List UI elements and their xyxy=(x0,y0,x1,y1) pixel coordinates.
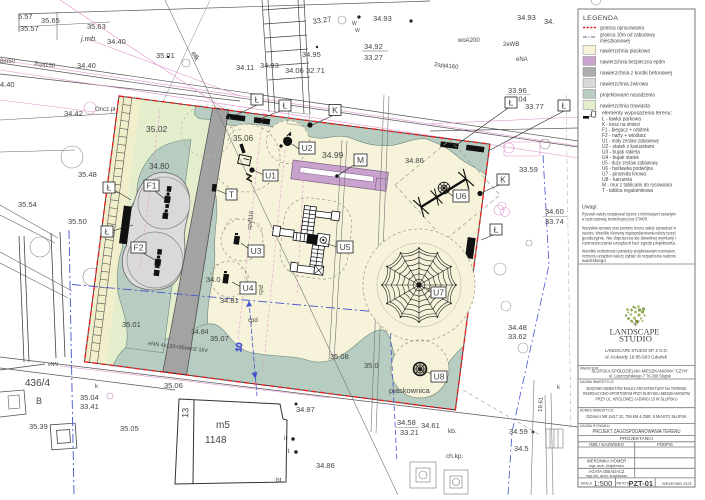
svg-text:PRZY UL. KRÓLOWEJ JADWIGI 10 W: PRZY UL. KRÓLOWEJ JADWIGI 10 W SŁUPSKU xyxy=(596,396,678,402)
svg-text:W: W xyxy=(352,21,357,27)
svg-text:35.65: 35.65 xyxy=(41,16,60,25)
svg-text:kb.: kb. xyxy=(448,428,457,435)
svg-text:13: 13 xyxy=(180,408,191,419)
svg-text:j.mb.: j.mb. xyxy=(80,34,97,43)
svg-text:35.50: 35.50 xyxy=(68,217,87,226)
svg-text:34.06: 34.06 xyxy=(285,66,304,75)
svg-text:33.21: 33.21 xyxy=(400,428,419,437)
svg-text:PROJEKT ZAGOSPODAROWANIA TEREN: PROJEKT ZAGOSPODAROWANIA TERENU xyxy=(593,429,681,435)
svg-text:U2: U2 xyxy=(302,143,313,153)
svg-text:eNA: eNA xyxy=(516,57,528,63)
svg-text:T - tablica regulaminowa: T - tablica regulaminowa xyxy=(602,188,654,194)
svg-text:32.71: 32.71 xyxy=(306,66,325,75)
svg-text:34.81: 34.81 xyxy=(220,296,239,305)
svg-text:34.11: 34.11 xyxy=(236,63,254,72)
svg-text:33.62: 33.62 xyxy=(508,332,527,341)
svg-text:nawierzchnia trawiasta: nawierzchnia trawiasta xyxy=(600,104,651,110)
svg-text:35.05: 35.05 xyxy=(120,424,139,433)
svg-text:35.01: 35.01 xyxy=(122,320,141,329)
svg-text:1:500: 1:500 xyxy=(594,479,613,488)
svg-text:Ł: Ł xyxy=(509,98,514,108)
svg-text:mieszkaniowej: mieszkaniowej xyxy=(600,39,630,45)
svg-text:1148: 1148 xyxy=(205,435,227,446)
svg-text:34.87: 34.87 xyxy=(296,405,315,414)
svg-text:33.59: 33.59 xyxy=(519,165,538,174)
svg-text:M: M xyxy=(357,155,364,165)
svg-text:Ł: Ł xyxy=(562,101,567,111)
svg-text:34.40: 34.40 xyxy=(77,61,96,70)
svg-text:LEGENDA: LEGENDA xyxy=(583,15,618,22)
svg-text:34.93: 34.93 xyxy=(373,14,392,23)
svg-text:DZIAŁKI NR 16/17 22, 759 KM 4: DZIAŁKI NR 16/17 22, 759 KM 4 OBR. 9 MIA… xyxy=(587,414,687,419)
svg-text:mgr inż. arch. krajobrazu: mgr inż. arch. krajobrazu xyxy=(586,474,628,478)
svg-text:34.86: 34.86 xyxy=(316,461,335,470)
svg-text:woA200: woA200 xyxy=(457,38,480,44)
svg-text:34.95: 34.95 xyxy=(302,50,321,59)
svg-text:ul. Kokardy 19 85-503 Gdańsk: ul. Kokardy 19 85-503 Gdańsk xyxy=(605,355,668,361)
svg-text:35.63: 35.63 xyxy=(87,22,106,31)
svg-text:K: K xyxy=(332,105,338,115)
svg-text:IMIĘ I NAZWISKO: IMIĘ I NAZWISKO xyxy=(589,442,624,447)
svg-text:w części opisowej, konstrukcyj: w części opisowej, konstrukcyjnej oraz S… xyxy=(582,217,648,222)
svg-text:projektowane nasadzenia: projektowane nasadzenia xyxy=(600,93,656,99)
svg-text:nawierzchnia bezpieczna epdm: nawierzchnia bezpieczna epdm xyxy=(600,60,665,66)
svg-text:eNN: eNN xyxy=(48,362,58,368)
svg-text:U5: U5 xyxy=(340,242,351,252)
svg-text:Oncz.pł: Oncz.pł xyxy=(95,107,116,113)
svg-text:34.93: 34.93 xyxy=(260,61,279,70)
svg-text:F2: F2 xyxy=(134,243,144,253)
svg-text:35.57: 35.57 xyxy=(20,24,39,33)
svg-text:F1: F1 xyxy=(147,181,157,191)
svg-text:NAZWA RYSUNKU:: NAZWA RYSUNKU: xyxy=(580,424,610,428)
svg-text:35.06: 35.06 xyxy=(233,134,254,143)
svg-text:Uwagi:: Uwagi: xyxy=(582,205,598,211)
svg-text:34.84: 34.84 xyxy=(191,329,209,336)
svg-text:35.0: 35.0 xyxy=(364,361,379,370)
svg-text:35.02: 35.02 xyxy=(146,124,168,134)
svg-text:34.92: 34.92 xyxy=(364,42,383,51)
svg-text:T: T xyxy=(229,190,234,200)
svg-text:35.54: 35.54 xyxy=(18,200,37,209)
svg-text:Ł: Ł xyxy=(255,95,260,105)
svg-text:Ł: Ł xyxy=(107,183,112,193)
svg-text:34.48: 34.48 xyxy=(508,323,527,332)
svg-text:35.39: 35.39 xyxy=(29,422,48,431)
svg-text:34.59: 34.59 xyxy=(509,427,528,436)
svg-text:NAZWA INWESTYCJI:: NAZWA INWESTYCJI: xyxy=(580,380,614,384)
svg-text:LANDSCAPE STUDIO SP. Z O.O.: LANDSCAPE STUDIO SP. Z O.O. xyxy=(605,348,668,354)
svg-text:34.80: 34.80 xyxy=(149,162,170,171)
svg-text:35.07: 35.07 xyxy=(210,334,229,343)
svg-text:bt.: bt. xyxy=(276,477,283,484)
svg-text:8m50: 8m50 xyxy=(0,59,16,65)
svg-text:34.99: 34.99 xyxy=(322,150,344,160)
svg-text:U4: U4 xyxy=(243,283,254,293)
svg-text:U3: U3 xyxy=(251,246,262,256)
svg-text:STUDIO: STUDIO xyxy=(619,335,652,344)
svg-text:34.42: 34.42 xyxy=(64,109,83,118)
svg-text:PROJEKTANCI: PROJEKTANCI xyxy=(620,436,653,442)
svg-text:34.5: 34.5 xyxy=(514,444,529,453)
svg-text:Ł: Ł xyxy=(283,101,288,111)
svg-text:10: 10 xyxy=(234,342,244,352)
svg-text:U6: U6 xyxy=(456,191,467,201)
svg-text:B: B xyxy=(36,396,42,406)
svg-text:34.61: 34.61 xyxy=(421,421,440,430)
svg-text:34.58: 34.58 xyxy=(397,418,416,427)
svg-text:rozmieszczania urządzeń bez zg: rozmieszczania urządzeń bez zgody projek… xyxy=(582,241,676,246)
svg-text:34.93: 34.93 xyxy=(517,13,536,22)
svg-text:nawierzchnia piaskowa: nawierzchnia piaskowa xyxy=(600,49,651,55)
svg-text:34.86: 34.86 xyxy=(405,156,424,165)
svg-text:mgr arch. krajobrazu: mgr arch. krajobrazu xyxy=(589,464,624,468)
svg-text:nawierzchnia z kostki betonowe: nawierzchnia z kostki betonowej xyxy=(600,71,672,77)
svg-text:33.27: 33.27 xyxy=(364,53,383,62)
svg-text:U8: U8 xyxy=(434,372,445,382)
svg-text:Ł: Ł xyxy=(105,227,110,237)
svg-text:34.: 34. xyxy=(544,17,554,26)
svg-text:35.01: 35.01 xyxy=(156,51,175,60)
svg-text:35.48: 35.48 xyxy=(78,170,97,179)
svg-text:34.60: 34.60 xyxy=(545,207,564,216)
svg-text:Ł: Ł xyxy=(494,225,499,235)
svg-text:34.40: 34.40 xyxy=(107,37,126,46)
svg-text:WERONIKA HOMER: WERONIKA HOMER xyxy=(587,459,626,464)
svg-text:33.74: 33.74 xyxy=(545,217,564,226)
svg-text:33.77: 33.77 xyxy=(525,102,544,111)
svg-text:ADRES INWESTYCJI:: ADRES INWESTYCJI: xyxy=(580,409,614,413)
svg-text:34.0: 34.0 xyxy=(206,275,221,284)
svg-text:K: K xyxy=(500,175,506,185)
svg-text:m5: m5 xyxy=(216,420,230,431)
svg-text:autorskiego.: autorskiego. xyxy=(582,258,607,263)
svg-text:2eWB: 2eWB xyxy=(503,42,519,48)
svg-text:PZT-01: PZT-01 xyxy=(629,481,654,488)
svg-text:PODPIS: PODPIS xyxy=(657,442,673,447)
svg-text:35.08: 35.08 xyxy=(330,352,349,361)
svg-text:cpd: cpd xyxy=(258,285,265,295)
svg-text:granica opracowania: granica opracowania xyxy=(600,26,645,32)
svg-text:U7: U7 xyxy=(433,288,444,298)
svg-text:cpd: cpd xyxy=(248,318,258,324)
svg-text:19.61: 19.61 xyxy=(538,396,545,412)
svg-text:35.04: 35.04 xyxy=(80,393,99,402)
svg-text:ch.kp.: ch.kp. xyxy=(446,453,464,460)
svg-text:ul. Leszczyńskiego 7 76-200 Sł: ul. Leszczyńskiego 7 76-200 Słupsk xyxy=(609,374,672,379)
svg-text:WRZESIEŃ 2023: WRZESIEŃ 2023 xyxy=(662,482,692,486)
svg-text:W: W xyxy=(355,28,360,34)
svg-text:35.06: 35.06 xyxy=(164,381,183,390)
svg-text:piaskownica: piaskownica xyxy=(389,386,431,395)
svg-text:33.41: 33.41 xyxy=(80,402,99,411)
svg-text:U1: U1 xyxy=(265,171,276,181)
svg-text:4.40: 4.40 xyxy=(0,80,15,89)
svg-text:436/4: 436/4 xyxy=(25,378,50,389)
svg-text:5.57: 5.57 xyxy=(18,12,33,21)
svg-text:nawierzchnia żwirowa: nawierzchnia żwirowa xyxy=(600,82,649,88)
svg-text:SKALA: SKALA xyxy=(581,482,593,486)
svg-text:REKREACYJNO-SPORTOWYM PRZY BUD: REKREACYJNO-SPORTOWYM PRZY BUDYNKU MIESZ… xyxy=(583,391,690,396)
